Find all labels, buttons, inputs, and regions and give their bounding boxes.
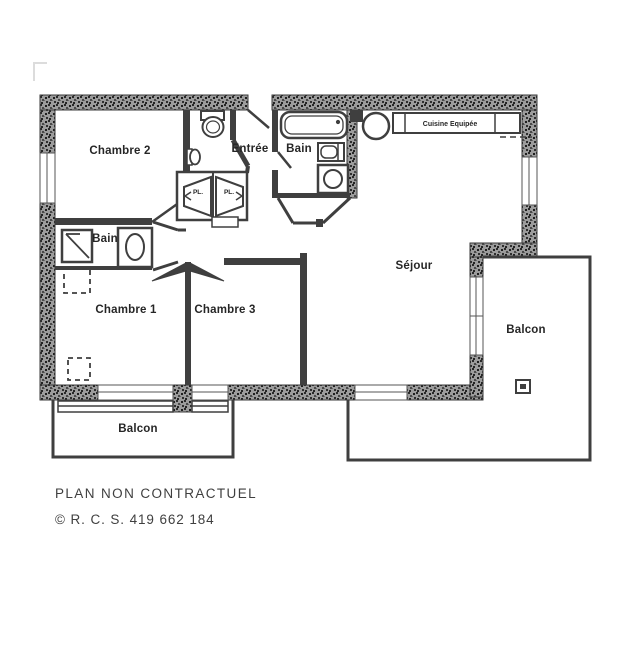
closet-label-left: PL. <box>193 189 203 196</box>
wc-sink-icon <box>187 149 200 165</box>
front-door-leaf <box>248 110 269 128</box>
fixtures <box>62 111 532 267</box>
closet-shelf <box>212 217 238 227</box>
chambre3-door-leaf <box>190 263 224 281</box>
left-bain-sink-icon <box>118 228 152 267</box>
room-label-balcon-right: Balcon <box>506 324 546 336</box>
kitchen-round-fixture <box>363 113 389 139</box>
wardrobe-outline-2 <box>68 358 90 380</box>
room-label-cuisine: Cuisine Equipée <box>423 121 478 128</box>
bathroom-sink-icon <box>318 143 344 161</box>
wardrobe-outline-1 <box>64 269 90 293</box>
balcony-right-drain-icon <box>516 380 530 393</box>
window-bottom-ch3 <box>192 385 228 400</box>
floorplan-page: Chambre 2 Entrée Bain Cuisine Equipée Ba… <box>0 0 640 640</box>
plan-disclaimer-text: PLAN NON CONTRACTUEL <box>55 486 257 501</box>
floorplan-svg: Chambre 2 Entrée Bain Cuisine Equipée Ba… <box>0 0 640 640</box>
room-label-sejour: Séjour <box>396 260 433 272</box>
scan-corner-mark <box>34 63 47 81</box>
rcs-registration-text: © R. C. S. 419 662 184 <box>55 512 215 527</box>
window-left-wall <box>40 153 55 203</box>
room-label-bain-top: Bain <box>286 143 312 155</box>
closet-label-right: PL. <box>224 189 234 196</box>
room-label-bain-left: Bain <box>92 233 118 245</box>
windows <box>40 153 537 400</box>
room-label-entree: Entrée <box>232 143 269 155</box>
shower-icon <box>62 230 92 262</box>
closets <box>177 172 247 227</box>
window-sejour-east <box>470 277 483 355</box>
balcony-right-outline <box>348 257 590 460</box>
window-right-wall <box>522 157 537 205</box>
room-label-chambre-1: Chambre 1 <box>95 304 157 316</box>
room-label-chambre-3: Chambre 3 <box>194 304 255 316</box>
bathtub-icon <box>281 112 347 138</box>
toilet-icon <box>201 111 224 137</box>
window-bottom-sejour <box>355 385 407 400</box>
window-bottom-ch1 <box>98 385 173 400</box>
balcony-left-threshold <box>58 401 228 412</box>
room-label-chambre-2: Chambre 2 <box>89 145 150 157</box>
room-label-balcon-left: Balcon <box>118 423 158 435</box>
dashed-outlines <box>64 269 90 380</box>
washing-machine-icon <box>318 165 348 193</box>
